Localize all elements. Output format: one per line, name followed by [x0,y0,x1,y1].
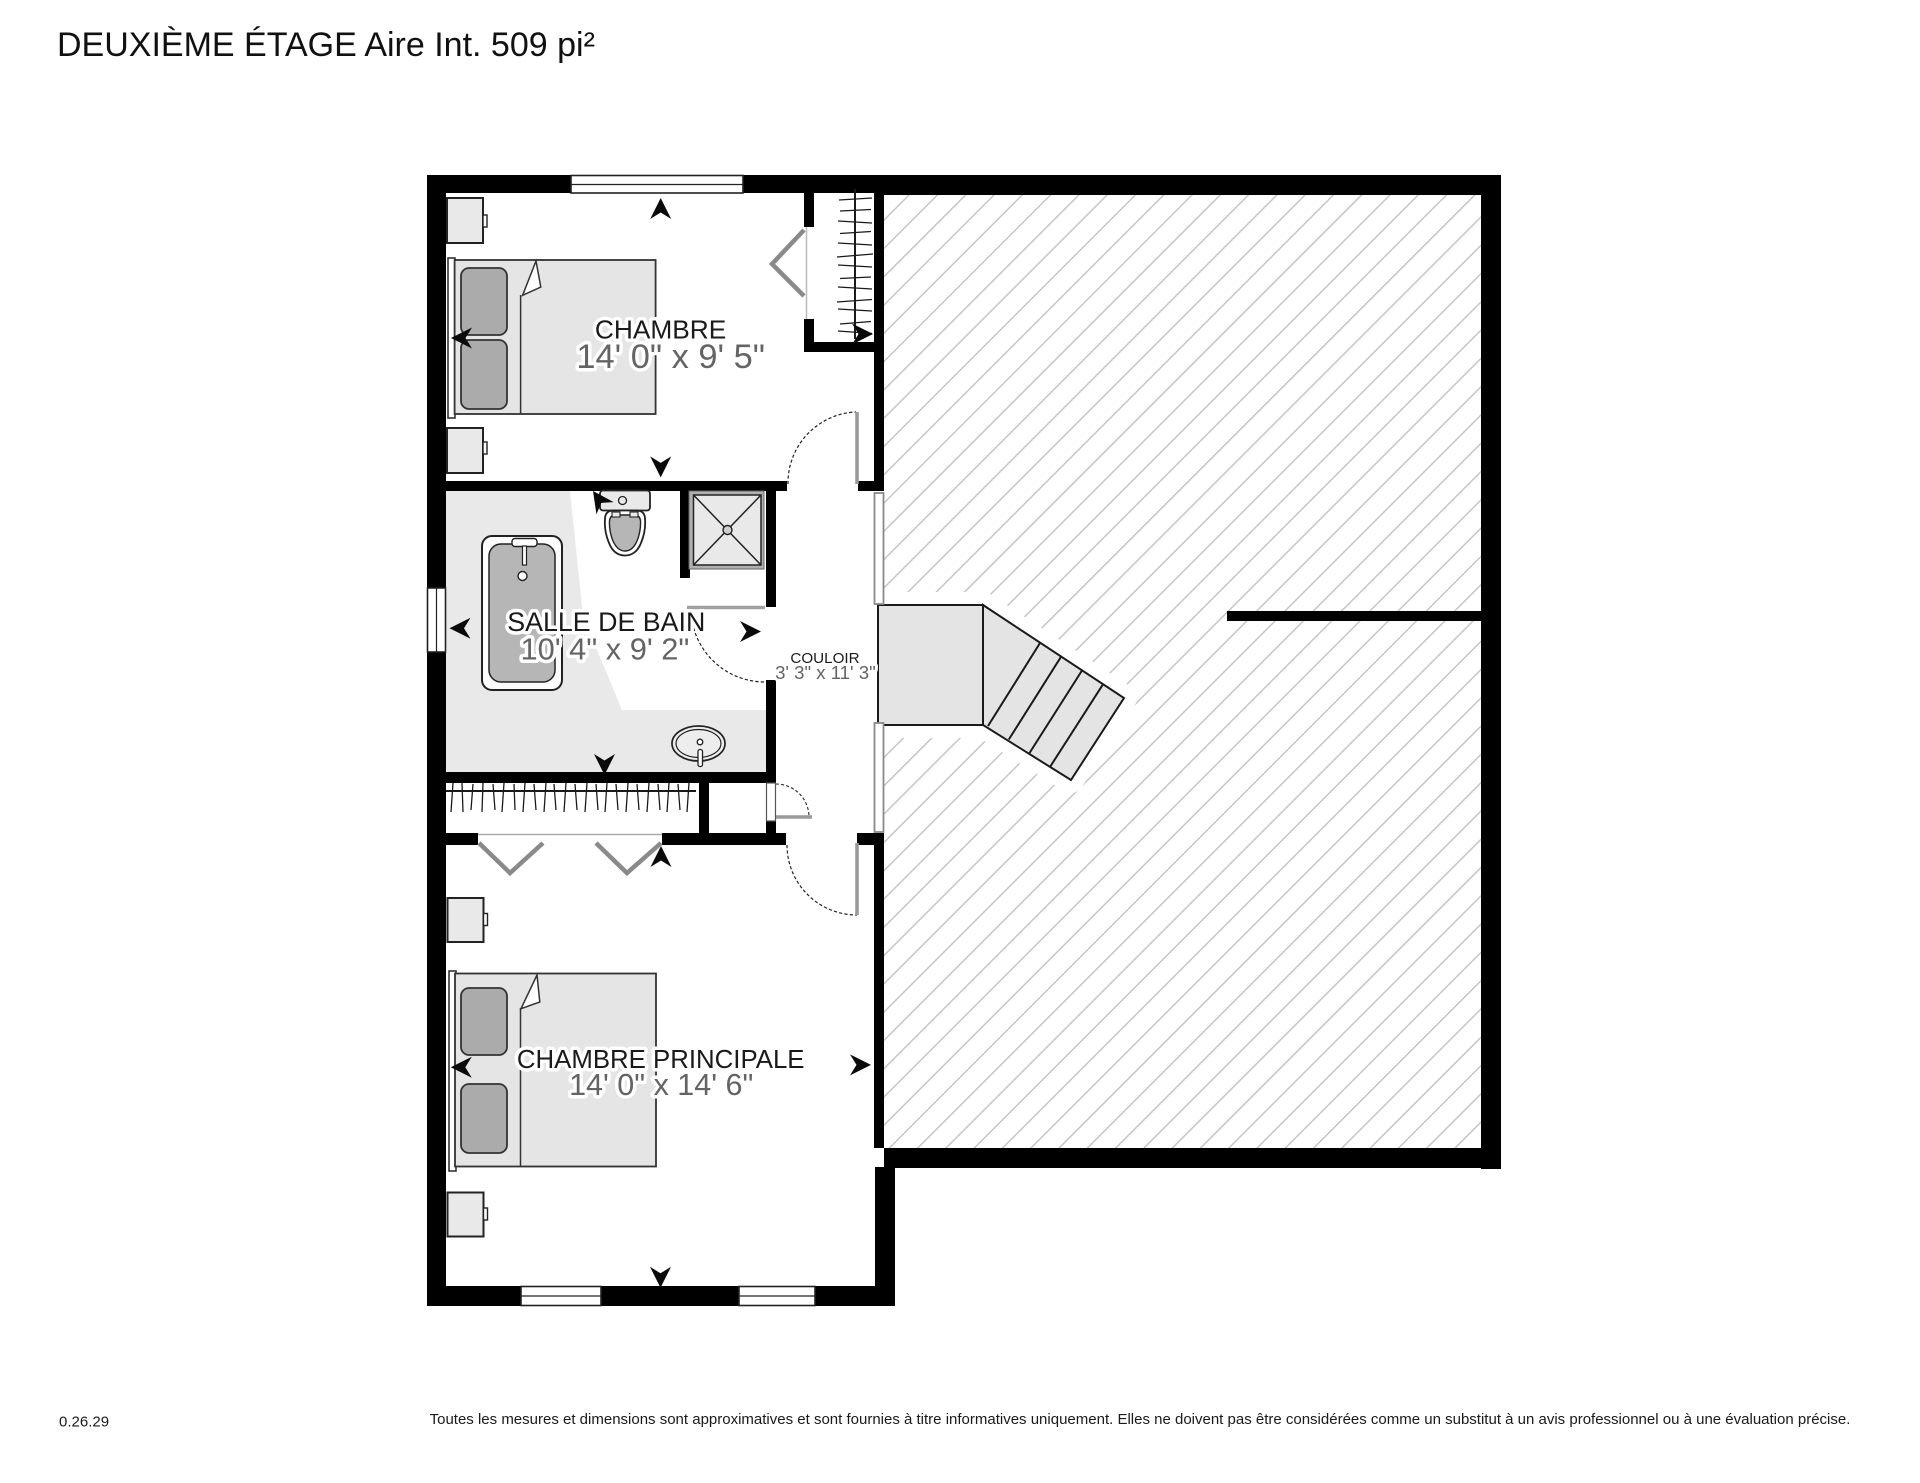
svg-text:14' 0" x 14' 6": 14' 0" x 14' 6" [569,1068,753,1102]
svg-text:10' 4" x 9' 2": 10' 4" x 9' 2" [520,632,689,667]
svg-text:14' 0" x 9' 5": 14' 0" x 9' 5" [576,338,765,376]
svg-text:0.26.29: 0.26.29 [59,1414,109,1431]
svg-text:Toutes les mesures et dimensio: Toutes les mesures et dimensions sont ap… [430,1411,1851,1428]
svg-text:DEUXIÈME ÉTAGE Aire Int. 509 p: DEUXIÈME ÉTAGE Aire Int. 509 pi² [57,26,595,64]
svg-text:3' 3" x 11' 3": 3' 3" x 11' 3" [775,662,876,683]
